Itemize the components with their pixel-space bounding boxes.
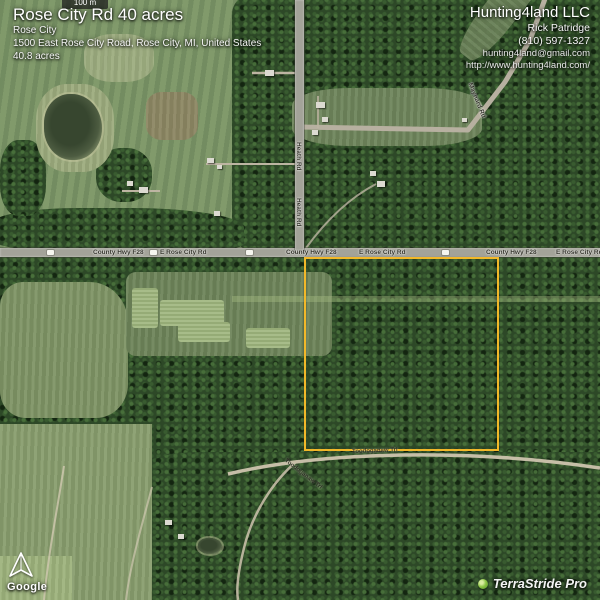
road-label: E Rose City Rd bbox=[359, 249, 406, 256]
terrastride-label: TerraStride Pro bbox=[493, 576, 587, 591]
contact-info: Hunting4land LLC Rick Patridge (810) 597… bbox=[466, 4, 590, 72]
contact-phone: (810) 597-1327 bbox=[466, 35, 590, 48]
building bbox=[178, 534, 184, 539]
google-attribution: Google bbox=[7, 581, 47, 593]
building bbox=[322, 117, 328, 122]
road-label: County Hwy F28 bbox=[486, 249, 537, 256]
road-label: County Hwy F28 bbox=[93, 249, 144, 256]
listing-city: Rose City bbox=[13, 24, 261, 37]
listing-address: 1500 East Rose City Road, Rose City, MI,… bbox=[13, 37, 261, 50]
building bbox=[207, 158, 214, 163]
route-shield-icon bbox=[441, 249, 450, 256]
listing-title: Rose City Rd 40 acres bbox=[13, 5, 261, 24]
north-arrow-icon bbox=[8, 552, 34, 578]
route-shield-icon bbox=[245, 249, 254, 256]
contact-name: Rick Patridge bbox=[466, 22, 590, 35]
road-label: Heath Rd bbox=[295, 142, 302, 171]
building bbox=[217, 165, 222, 169]
terrastride-leaf-icon bbox=[478, 579, 488, 589]
building bbox=[139, 187, 148, 193]
listing-info: Rose City Rd 40 acres Rose City 1500 Eas… bbox=[13, 5, 261, 63]
road-label: E Rose City Rd bbox=[556, 249, 600, 256]
building bbox=[265, 70, 274, 76]
contact-website: http://www.hunting4land.com/ bbox=[466, 60, 590, 72]
road-label: Heath Rd bbox=[295, 198, 302, 227]
building bbox=[127, 181, 133, 186]
building bbox=[316, 102, 325, 108]
contact-company: Hunting4land LLC bbox=[466, 4, 590, 22]
map-canvas[interactable]: County Hwy F28 E Rose City Rd County Hwy… bbox=[0, 0, 600, 600]
building bbox=[312, 130, 318, 135]
building bbox=[165, 520, 172, 525]
property-boundary bbox=[304, 257, 499, 451]
building bbox=[214, 211, 220, 216]
building bbox=[370, 171, 376, 176]
route-shield-icon bbox=[149, 249, 158, 256]
building bbox=[462, 118, 467, 122]
road-label: County Hwy F28 bbox=[286, 249, 337, 256]
route-shield-icon bbox=[46, 249, 55, 256]
listing-acres: 40.8 acres bbox=[13, 50, 261, 63]
road-label: E Rose City Rd bbox=[160, 249, 207, 256]
contact-email: hunting4land@gmail.com bbox=[466, 48, 590, 60]
building bbox=[377, 181, 385, 187]
terrastride-branding: TerraStride Pro bbox=[478, 576, 587, 591]
